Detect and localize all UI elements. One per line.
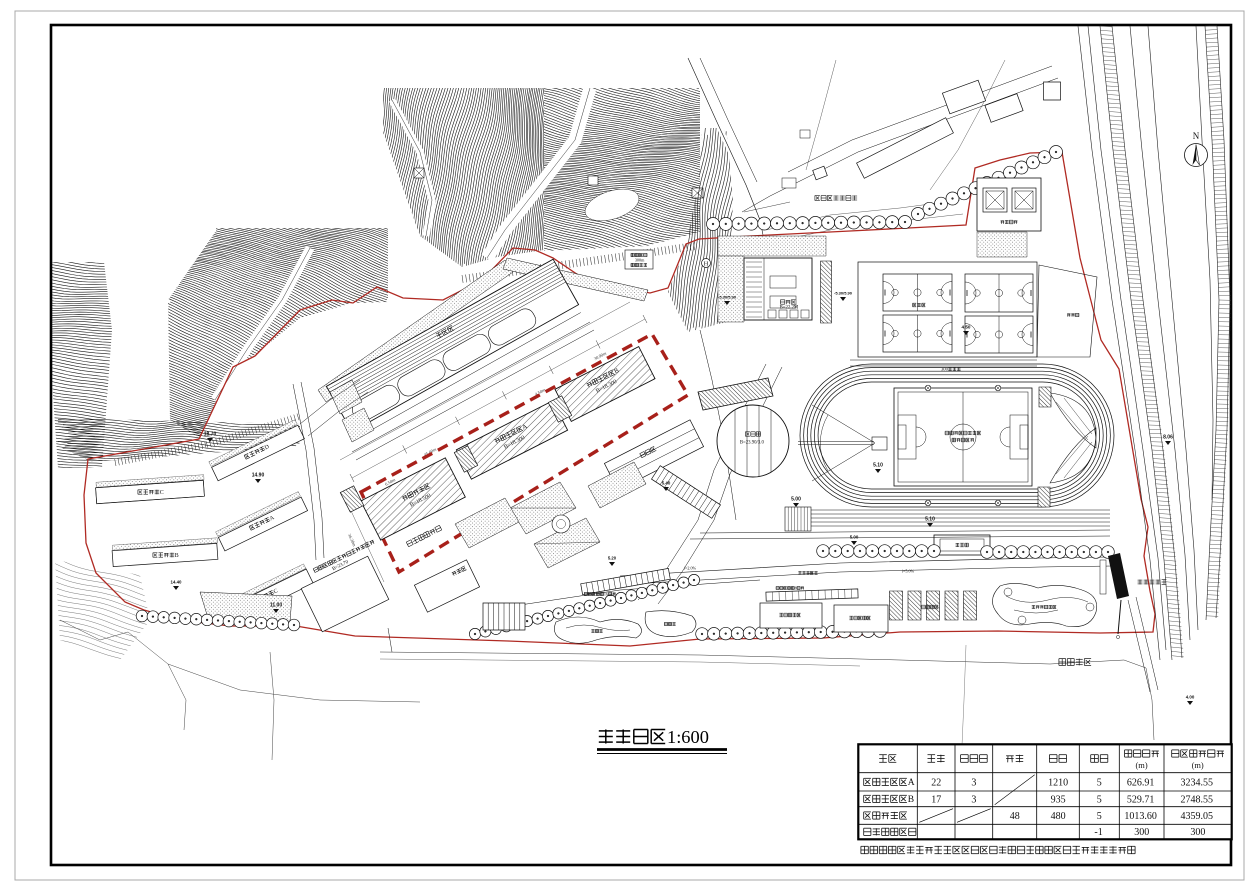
svg-text:14.40: 14.40 bbox=[171, 580, 183, 585]
svg-text:5: 5 bbox=[1097, 794, 1102, 805]
svg-text:i=5.0%: i=5.0% bbox=[902, 568, 915, 573]
svg-text:5.40: 5.40 bbox=[662, 481, 671, 486]
svg-text:5.00: 5.00 bbox=[850, 535, 859, 540]
svg-text:4.50: 4.50 bbox=[962, 325, 971, 330]
svg-text:17: 17 bbox=[931, 794, 941, 805]
svg-text:C: C bbox=[160, 490, 164, 496]
svg-text:8: 8 bbox=[795, 585, 797, 590]
svg-text:B=22.2M: B=22.2M bbox=[780, 306, 799, 311]
svg-text:3: 3 bbox=[971, 777, 976, 788]
svg-text:i=2.0%: i=2.0% bbox=[684, 565, 697, 570]
svg-text:B: B bbox=[908, 795, 914, 805]
svg-text:1:600: 1:600 bbox=[667, 727, 709, 747]
svg-text:300m: 300m bbox=[635, 257, 645, 262]
svg-text:18.70: 18.70 bbox=[204, 432, 217, 438]
svg-text:2748.55: 2748.55 bbox=[1181, 794, 1214, 805]
svg-text:5.10: 5.10 bbox=[873, 463, 883, 469]
svg-text:48: 48 bbox=[1010, 811, 1020, 822]
svg-text:3: 3 bbox=[971, 794, 976, 805]
svg-text:5.20: 5.20 bbox=[608, 556, 617, 561]
svg-text:11.00: 11.00 bbox=[270, 603, 282, 609]
svg-text:-5.30/5.90: -5.30/5.90 bbox=[834, 291, 853, 296]
svg-text:B=23.90/3.0: B=23.90/3.0 bbox=[740, 441, 765, 446]
svg-text:1013.60: 1013.60 bbox=[1124, 811, 1157, 822]
svg-text:(m): (m) bbox=[1192, 761, 1204, 770]
svg-text:H: H bbox=[704, 261, 709, 268]
svg-text:935: 935 bbox=[1051, 794, 1066, 805]
svg-text:-5.30/5.90: -5.30/5.90 bbox=[718, 295, 737, 300]
svg-text:5.00: 5.00 bbox=[791, 497, 801, 503]
svg-text:(m): (m) bbox=[1136, 761, 1148, 770]
svg-text:3234.55: 3234.55 bbox=[1181, 777, 1214, 788]
svg-text:22: 22 bbox=[931, 777, 941, 788]
svg-text:626.91: 626.91 bbox=[1127, 777, 1155, 788]
svg-text:529.71: 529.71 bbox=[1127, 794, 1155, 805]
svg-text:14.90: 14.90 bbox=[252, 473, 265, 479]
svg-text:300: 300 bbox=[1190, 827, 1205, 838]
svg-text:300: 300 bbox=[1134, 827, 1149, 838]
svg-text:8.06: 8.06 bbox=[1163, 435, 1173, 441]
svg-text:-1: -1 bbox=[1094, 827, 1102, 838]
svg-text:4.00: 4.00 bbox=[1186, 695, 1195, 700]
svg-text:B: B bbox=[175, 553, 179, 559]
svg-text:1210: 1210 bbox=[1048, 777, 1068, 788]
svg-text:N: N bbox=[1193, 131, 1200, 141]
svg-text:A: A bbox=[908, 778, 915, 788]
svg-text:480: 480 bbox=[1051, 811, 1066, 822]
svg-text:16: 16 bbox=[604, 591, 608, 596]
svg-text:5.10: 5.10 bbox=[925, 517, 935, 523]
svg-text:5: 5 bbox=[1097, 811, 1102, 822]
svg-text:4359.05: 4359.05 bbox=[1181, 811, 1214, 822]
svg-text:300: 300 bbox=[941, 367, 949, 372]
svg-text:5: 5 bbox=[1097, 777, 1102, 788]
